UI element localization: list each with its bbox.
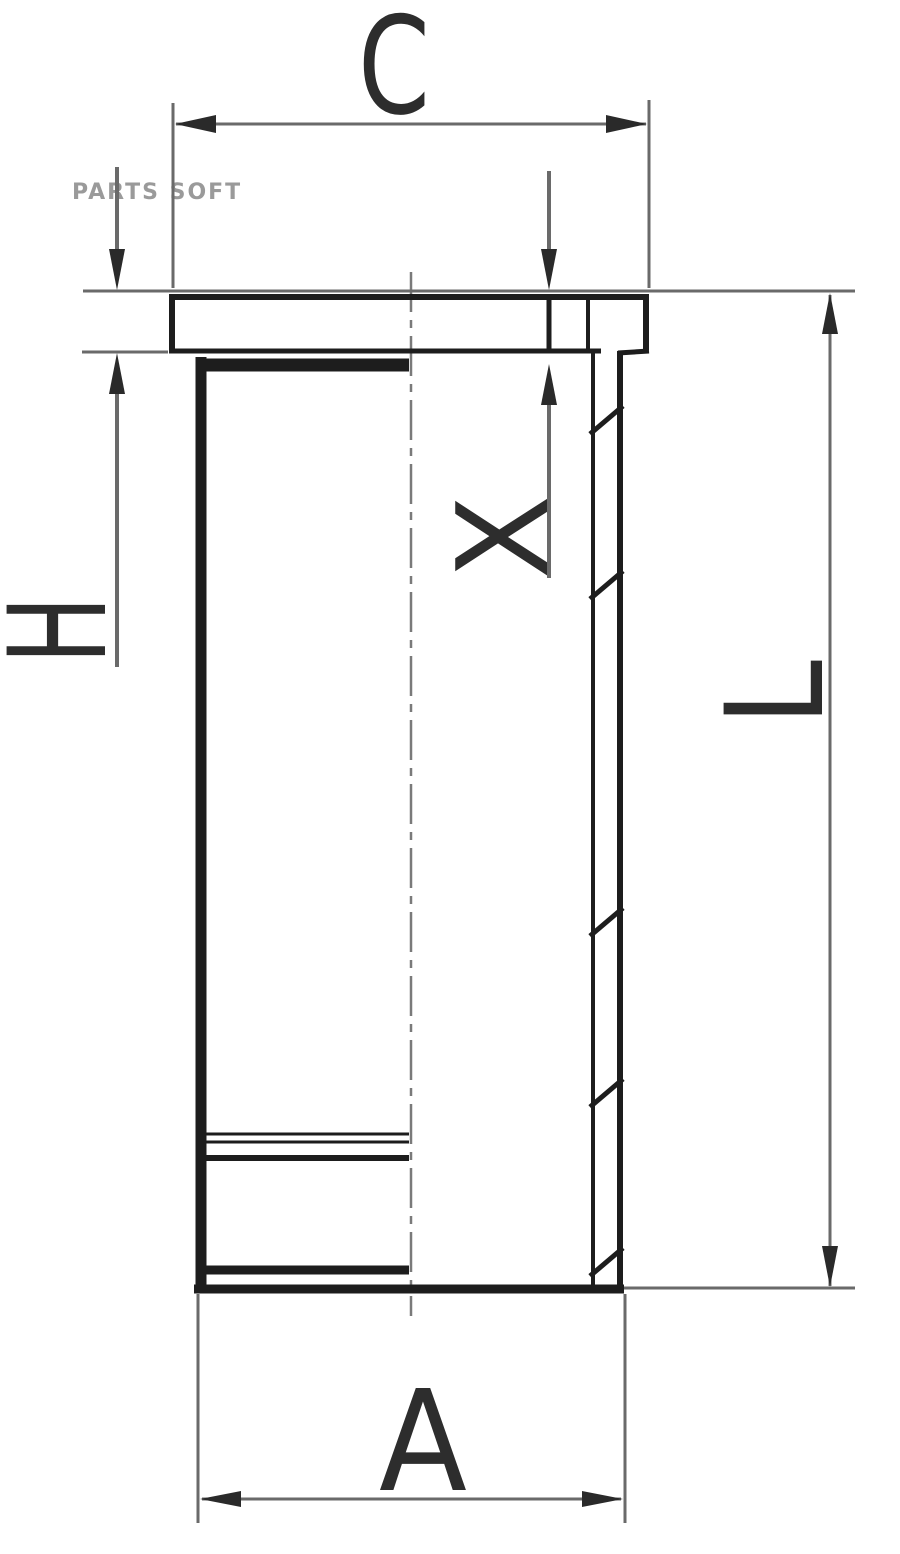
a-left-arrow: [200, 1491, 241, 1507]
dimension-label-c: C: [358, 0, 430, 145]
dimension-label-h: H: [0, 596, 137, 664]
dimension-letters: C H X L A: [0, 0, 854, 1524]
l-up-arrow: [822, 293, 838, 334]
dimension-label-l: L: [697, 660, 854, 726]
technical-drawing-page: PARTS SOFT: [0, 0, 900, 1554]
a-right-arrow: [582, 1491, 623, 1507]
dimension-label-x: X: [430, 495, 577, 579]
dimension-arrows: [109, 115, 838, 1507]
c-left-arrow: [175, 115, 216, 133]
x-down-arrow: [541, 249, 557, 290]
c-right-arrow: [606, 115, 647, 133]
part-outline: [169, 294, 649, 1289]
watermark-text: PARTS SOFT: [72, 180, 242, 205]
h-up-arrow: [109, 353, 125, 394]
x-up-arrow: [541, 364, 557, 405]
h-down-arrow: [109, 249, 125, 290]
l-down-arrow: [822, 1246, 838, 1287]
cylinder-liner-diagram: PARTS SOFT: [0, 0, 900, 1554]
dimension-label-a: A: [379, 1361, 467, 1524]
